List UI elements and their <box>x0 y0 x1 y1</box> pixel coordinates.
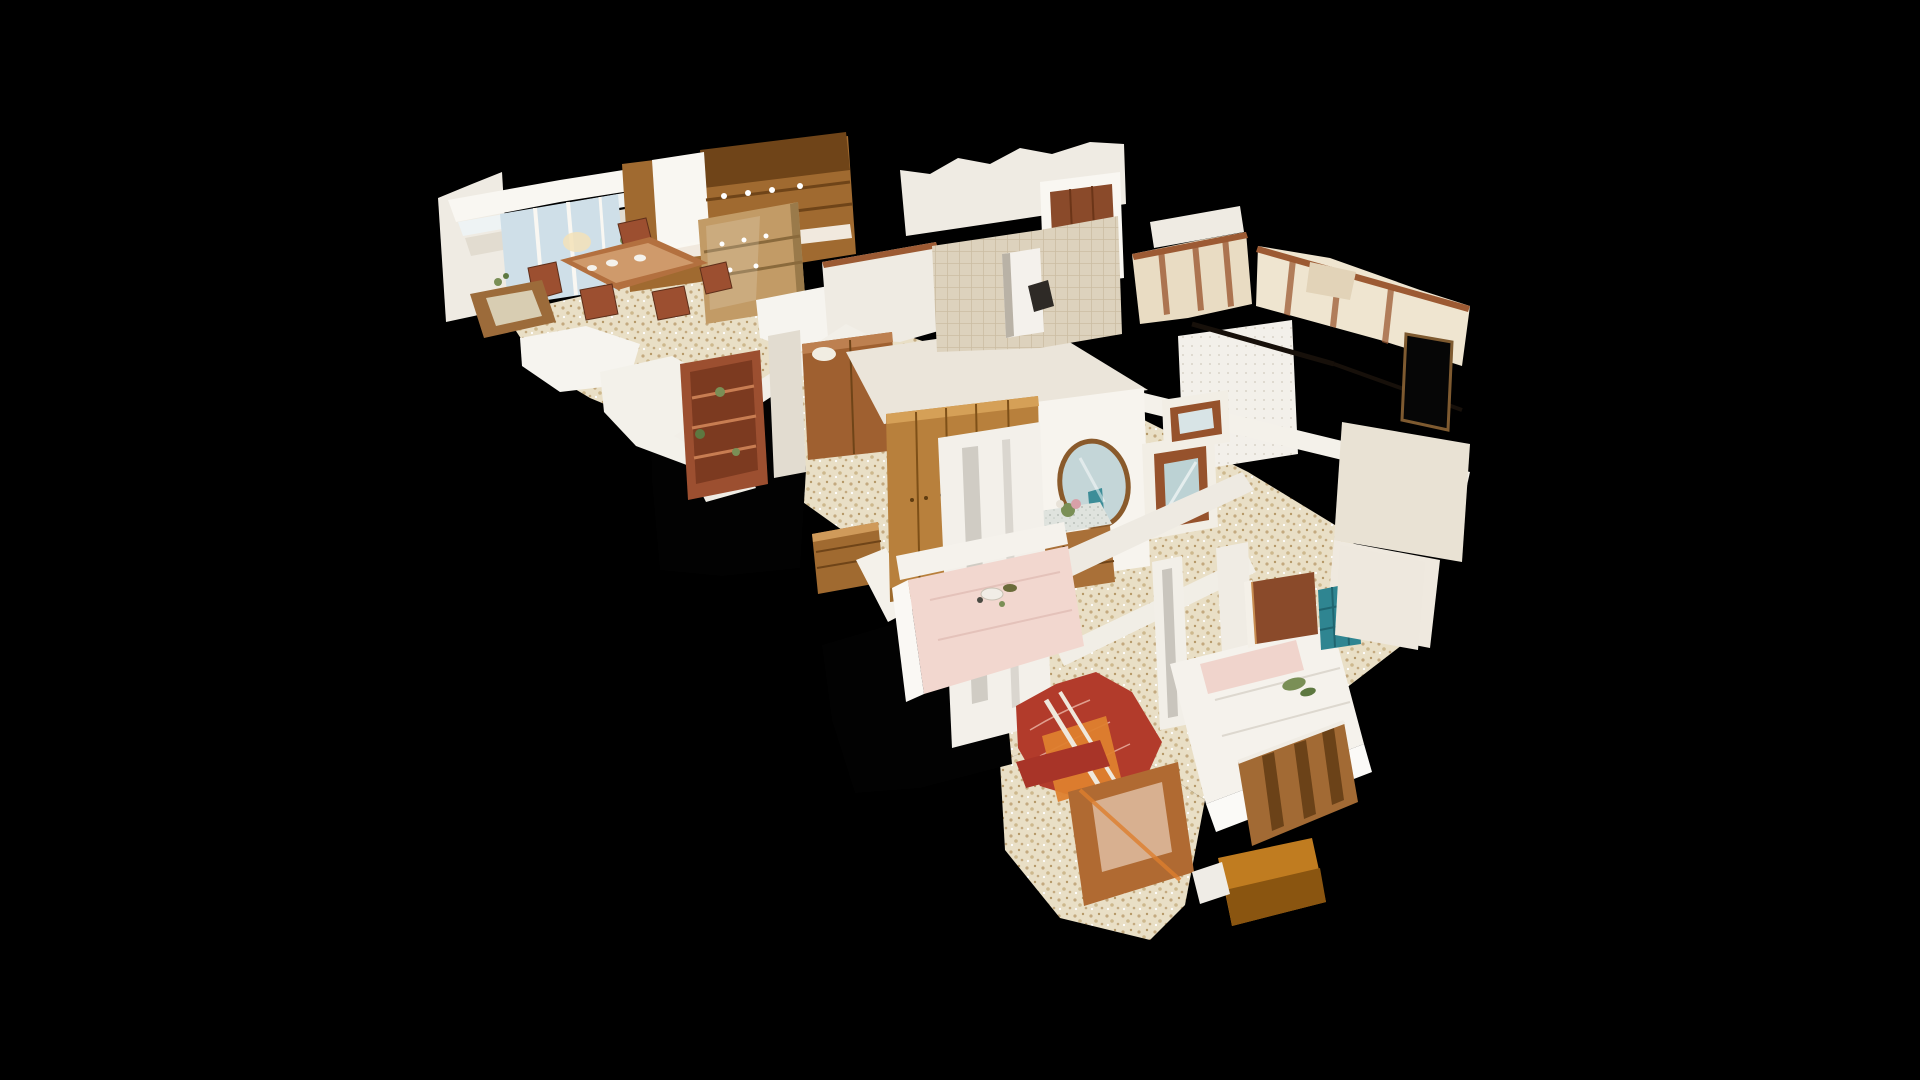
viewer-canvas[interactable] <box>0 0 1920 1080</box>
dollhouse-model[interactable] <box>0 0 1920 1080</box>
red-bookshelf <box>680 350 768 500</box>
wooden-bench <box>1192 838 1326 926</box>
transom-window <box>1162 390 1230 452</box>
dark-window-opening <box>1402 334 1452 430</box>
